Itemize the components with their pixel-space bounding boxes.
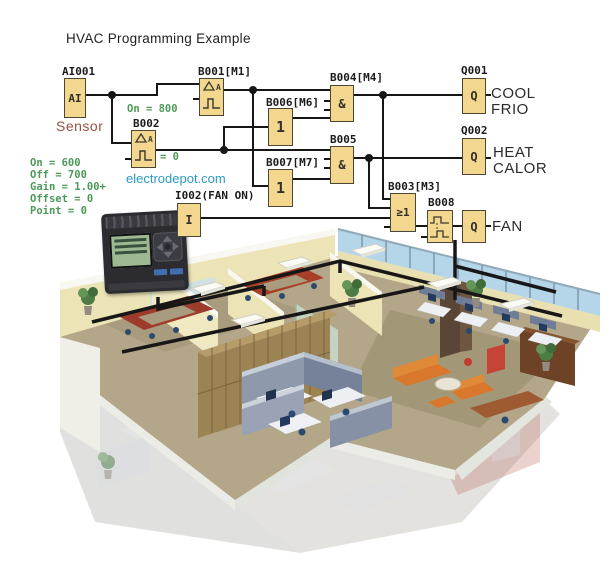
block-b003: ≥1 [390, 193, 416, 232]
block-b008-label: B008 [428, 196, 455, 209]
block-b003-label: B003[M3] [388, 180, 441, 193]
b002-param-off: Off = 700 [30, 169, 87, 181]
output-symbol: Q [470, 220, 477, 234]
block-b002: A [131, 130, 156, 168]
input-symbol: I [185, 213, 192, 227]
cool-caption-en: COOL [491, 85, 536, 102]
watermark-link[interactable]: electrodepot.com [126, 171, 226, 186]
heat-caption-en: HEAT [493, 144, 534, 161]
block-ai001-symbol: AI [68, 92, 81, 105]
hvac-tutorial-image: HVAC Programming Example AI001 AI Sensor… [0, 0, 615, 577]
b002-param-on: On = 600 [30, 157, 81, 169]
output-symbol: Q [470, 150, 477, 164]
page-title: HVAC Programming Example [66, 31, 251, 46]
block-qfan: Q [462, 210, 486, 243]
b002-param-gain: Gain = 1.00+ [30, 181, 106, 193]
or-symbol: 1 [276, 118, 285, 136]
schematic-layer: HVAC Programming Example AI001 AI Sensor… [0, 0, 615, 577]
fan-caption: FAN [492, 218, 523, 235]
svg-text:A: A [148, 135, 153, 144]
block-i002-label: I002(FAN ON) [175, 189, 254, 202]
and-symbol: & [338, 158, 345, 172]
heat-caption-es: CALOR [493, 160, 547, 177]
block-b004: & [330, 85, 354, 122]
block-q002-label: Q002 [461, 124, 488, 137]
b002-param-offset: Offset = 0 [30, 193, 93, 205]
block-ai001-label: AI001 [62, 65, 95, 78]
analog-trigger-icon: A [201, 80, 223, 114]
output-symbol: Q [470, 89, 477, 103]
block-i002: I [177, 203, 201, 237]
analog-trigger-icon: A [133, 132, 155, 166]
b001-param: On = 800 [127, 103, 178, 115]
block-b006: 1 [268, 108, 293, 146]
b002-param-point: Point = 0 [30, 205, 87, 217]
pulse-relay-icon [429, 213, 451, 241]
block-b007: 1 [268, 169, 293, 207]
block-b001-label: B001[M1] [198, 65, 251, 78]
block-b005-label: B005 [330, 133, 357, 146]
and-symbol: & [338, 97, 345, 111]
sensor-caption: Sensor [56, 118, 103, 134]
block-ai001: AI [64, 78, 86, 118]
block-b004-label: B004[M4] [330, 71, 383, 84]
svg-text:A: A [216, 83, 221, 92]
block-b007-label: B007[M7] [266, 156, 319, 169]
block-b008 [427, 210, 453, 243]
or-gte1-symbol: ≥1 [396, 206, 409, 219]
cool-caption-es: FRIO [491, 101, 529, 118]
block-q001-label: Q001 [461, 64, 488, 77]
block-b001: A [199, 78, 224, 116]
block-q002: Q [462, 138, 486, 175]
block-b005: & [330, 146, 354, 184]
block-q001: Q [462, 78, 486, 114]
b002-param: = 0 [160, 151, 179, 163]
or-symbol: 1 [276, 179, 285, 197]
block-b002-label: B002 [133, 117, 160, 130]
